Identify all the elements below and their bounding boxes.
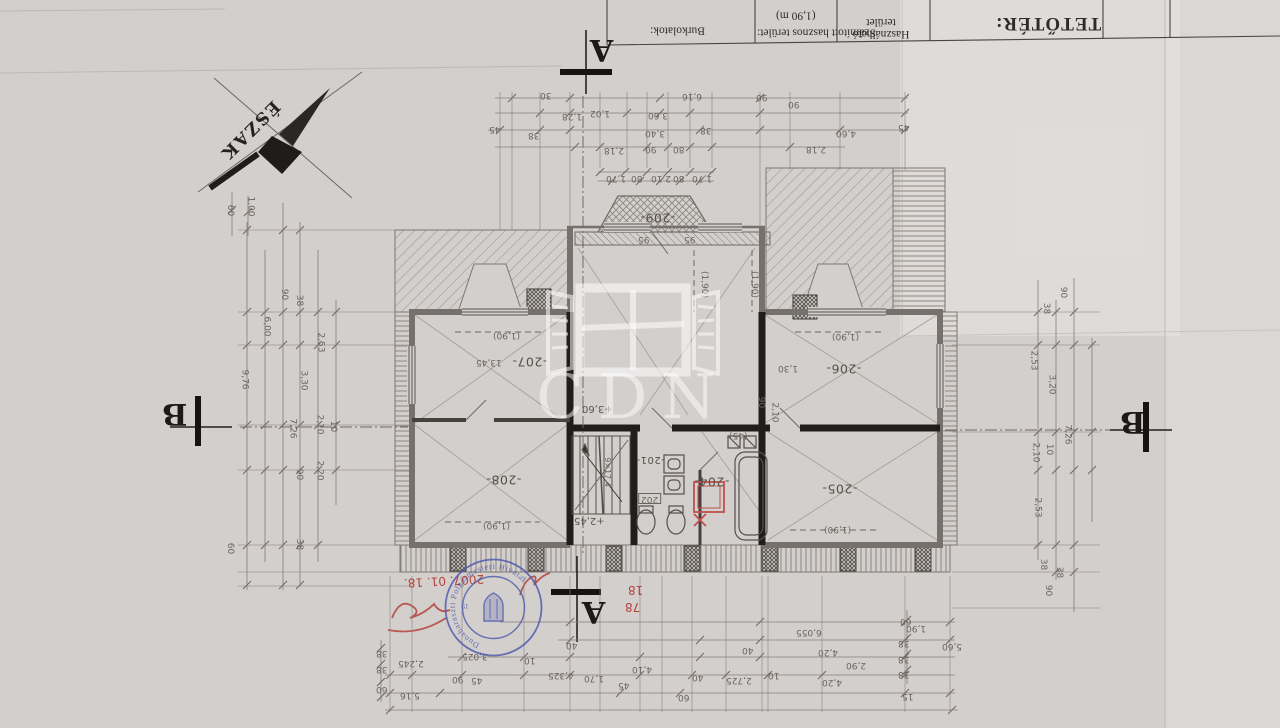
room-label: -209- [640, 211, 675, 224]
dim-label: 2,18 [604, 145, 624, 154]
dim-label: 90 [452, 674, 463, 683]
room-diagonals [415, 248, 937, 540]
dim-label: 95 [684, 234, 695, 243]
dim-label: 2,18 [806, 144, 826, 153]
dim-label: 38 [898, 669, 909, 678]
dim-label: 80 [673, 173, 684, 182]
dim-label: 1,30 [778, 363, 798, 372]
red-note-2: 78 [625, 601, 640, 613]
room-label: -206- [826, 362, 861, 375]
dim-label: 45 [471, 675, 482, 684]
dim-label: 2,10 [651, 173, 671, 182]
dim-label: 7,26 [288, 418, 297, 438]
toilet-1 [637, 510, 655, 534]
dimension-chains [228, 92, 1100, 714]
section-marker-a-bottom: A [582, 596, 605, 626]
watermark-shutter-right [694, 292, 718, 374]
dim-label: 1,70 [584, 673, 604, 682]
headroom-label: (1,90) [749, 271, 758, 298]
dim-label: 80 [631, 173, 642, 182]
dim-label: 7,26 [1063, 424, 1072, 444]
scanned-floor-plan-sheet: TETŐTÉR: Használható terület Számított h… [0, 0, 1280, 728]
dim-label: (45) [729, 430, 747, 439]
level-label: +3,60 [582, 403, 613, 413]
dim-label: 40 [692, 672, 703, 681]
dim-label: 4,20 [822, 677, 842, 686]
sink-1 [664, 455, 684, 473]
staircase [572, 436, 630, 514]
dim-label: 9,76 [240, 369, 249, 389]
dim-label: 2,20 [315, 460, 324, 480]
cdn-watermark: CDN [518, 280, 758, 430]
dim-label: 3,30 [299, 370, 308, 390]
dim-label: 2,53 [1029, 350, 1038, 370]
stamp-date: 2007. 01. 18. [404, 573, 485, 589]
dim-label: 80 [673, 144, 684, 153]
dim-label: 4,10 [632, 664, 652, 673]
stair-formula-label: 9×17,4 [603, 457, 611, 487]
title-block-cell-floor: Burkolatok: [650, 24, 705, 36]
dim-label: 30 [540, 90, 551, 99]
headroom-label: (1,90) [699, 271, 708, 298]
dim-label: 90 [645, 144, 656, 153]
dim-label: 95 [638, 234, 649, 243]
north-arrow [198, 72, 362, 198]
dim-label: 5,60 [942, 641, 962, 650]
area-label: 13,45 [476, 357, 502, 366]
title-block-cell-calc2: (1,90 m) [776, 9, 816, 21]
dim-label: 60 [225, 205, 234, 216]
title-block-cell-calc: Számított hasznos terület: [757, 26, 876, 38]
dim-label: 1,70 [606, 173, 626, 182]
dim-label: 3,40 [645, 128, 665, 137]
dim-label: 38 [294, 539, 303, 550]
outer-walls [412, 227, 940, 548]
room-label: -208- [486, 473, 521, 486]
room-label: -204- [694, 475, 729, 488]
room-label: 202 [638, 493, 661, 504]
section-marker-b-right: B [1120, 406, 1145, 436]
dim-label: 38 [1041, 303, 1050, 314]
dim-label: 90 [756, 92, 767, 101]
dim-label: 90 [1043, 585, 1052, 596]
door-leaves [466, 232, 800, 470]
dim-label: 1,02 [590, 108, 610, 117]
level-label: +2,45 [574, 515, 605, 525]
headroom-label: (1,90) [493, 330, 520, 339]
dim-label: 15 [902, 691, 913, 700]
section-marker-a-top: A [590, 34, 613, 64]
watermark-window-icon [580, 288, 686, 372]
dim-label: 2,10 [770, 402, 779, 422]
dim-label: 38 [1038, 559, 1047, 570]
dim-label: 40 [566, 640, 577, 649]
dim-label: 90 [1058, 287, 1067, 298]
dim-label: 90 [788, 99, 799, 108]
room-label: -205- [822, 482, 857, 495]
dim-label: 2,53 [1033, 497, 1042, 517]
dim-label: 60 [376, 684, 387, 693]
dim-label: 5,16 [400, 690, 420, 699]
dim-label: 90 [294, 469, 303, 480]
dim-label: 3,025 [462, 651, 488, 660]
windows [407, 222, 945, 408]
dim-label: 45 [489, 124, 500, 133]
dim-label: 38 [528, 130, 539, 139]
dim-label: 6,16 [682, 91, 702, 100]
title-block-table [607, 0, 1280, 45]
bathtub [735, 452, 767, 540]
paper-fold-light-band-2 [1166, 0, 1280, 728]
dim-label: 4,20 [818, 647, 838, 656]
dim-label: 90 [756, 397, 765, 408]
dim-label: 6,00 [262, 316, 271, 336]
dim-label: 40 [742, 645, 753, 654]
dim-label: 1,00 [246, 196, 255, 216]
watermark-text: CDN [536, 360, 729, 430]
title-block-title: TETŐTÉR: [995, 14, 1101, 33]
section-lines [240, 96, 1135, 556]
headroom-dashed-lines [445, 250, 885, 530]
dim-label: 2,725 [726, 675, 752, 684]
dim-label: 90 [279, 289, 288, 300]
north-label: ÉSZAK [216, 96, 284, 164]
red-note-1: 18 [628, 584, 643, 596]
headroom-label: (1,90) [483, 520, 510, 529]
dim-label: 2,53 [316, 332, 325, 352]
dim-label: 10 [524, 655, 535, 664]
dim-label: 4,325 [548, 670, 574, 679]
dim-label: 38 [1054, 567, 1063, 578]
dim-label: 38 [898, 638, 909, 647]
dim-label: 10 [1044, 444, 1053, 455]
dim-label: 60 [900, 616, 911, 625]
toilet-2 [667, 510, 685, 534]
dim-label: 45 [898, 122, 909, 131]
dim-label: 2,90 [846, 660, 866, 669]
dim-label: 3,60 [648, 110, 668, 119]
dim-label: 2,245 [398, 658, 424, 667]
dim-label: 38 [294, 295, 303, 306]
dim-label: 38 [898, 654, 909, 663]
dim-label: 6,055 [796, 627, 822, 636]
dim-label: 4,60 [836, 128, 856, 137]
interior-walls [570, 312, 940, 545]
dim-label: 2,10 [1031, 442, 1040, 462]
roof-hatch-regions [395, 168, 957, 572]
sink-2 [664, 476, 684, 494]
dim-label: 1,70 [692, 173, 712, 182]
fold-lines [0, 0, 1280, 728]
headroom-label: (1,90) [824, 524, 851, 533]
dim-label: 38 [700, 125, 711, 134]
room-label: -207- [512, 355, 547, 368]
dim-label: 3,20 [1047, 374, 1056, 394]
dim-label: 60 [678, 692, 689, 701]
section-marker-b-left: B [162, 398, 187, 428]
floor-plan-drawing [0, 0, 1280, 728]
official-stamp: Dunaharaszti Polgármesteri Hivatal 19 [436, 550, 551, 665]
dim-label: 10 [768, 670, 779, 679]
watermark-shutter-left [548, 292, 572, 374]
dim-label: 10 [328, 421, 337, 432]
headroom-label: (1,90) [832, 331, 859, 340]
partition-walls [412, 420, 700, 545]
dim-label: 1,28 [562, 111, 582, 120]
dim-label: 38 [376, 648, 387, 657]
dim-label: 2,10 [315, 414, 324, 434]
dim-label: 60 [225, 543, 234, 554]
stamp-number: 19 [461, 602, 469, 611]
room-label: -201- [636, 454, 665, 464]
dim-label: 38 [376, 664, 387, 673]
dim-label: 45 [618, 680, 629, 689]
paper-fold-light-band [900, 0, 1180, 336]
